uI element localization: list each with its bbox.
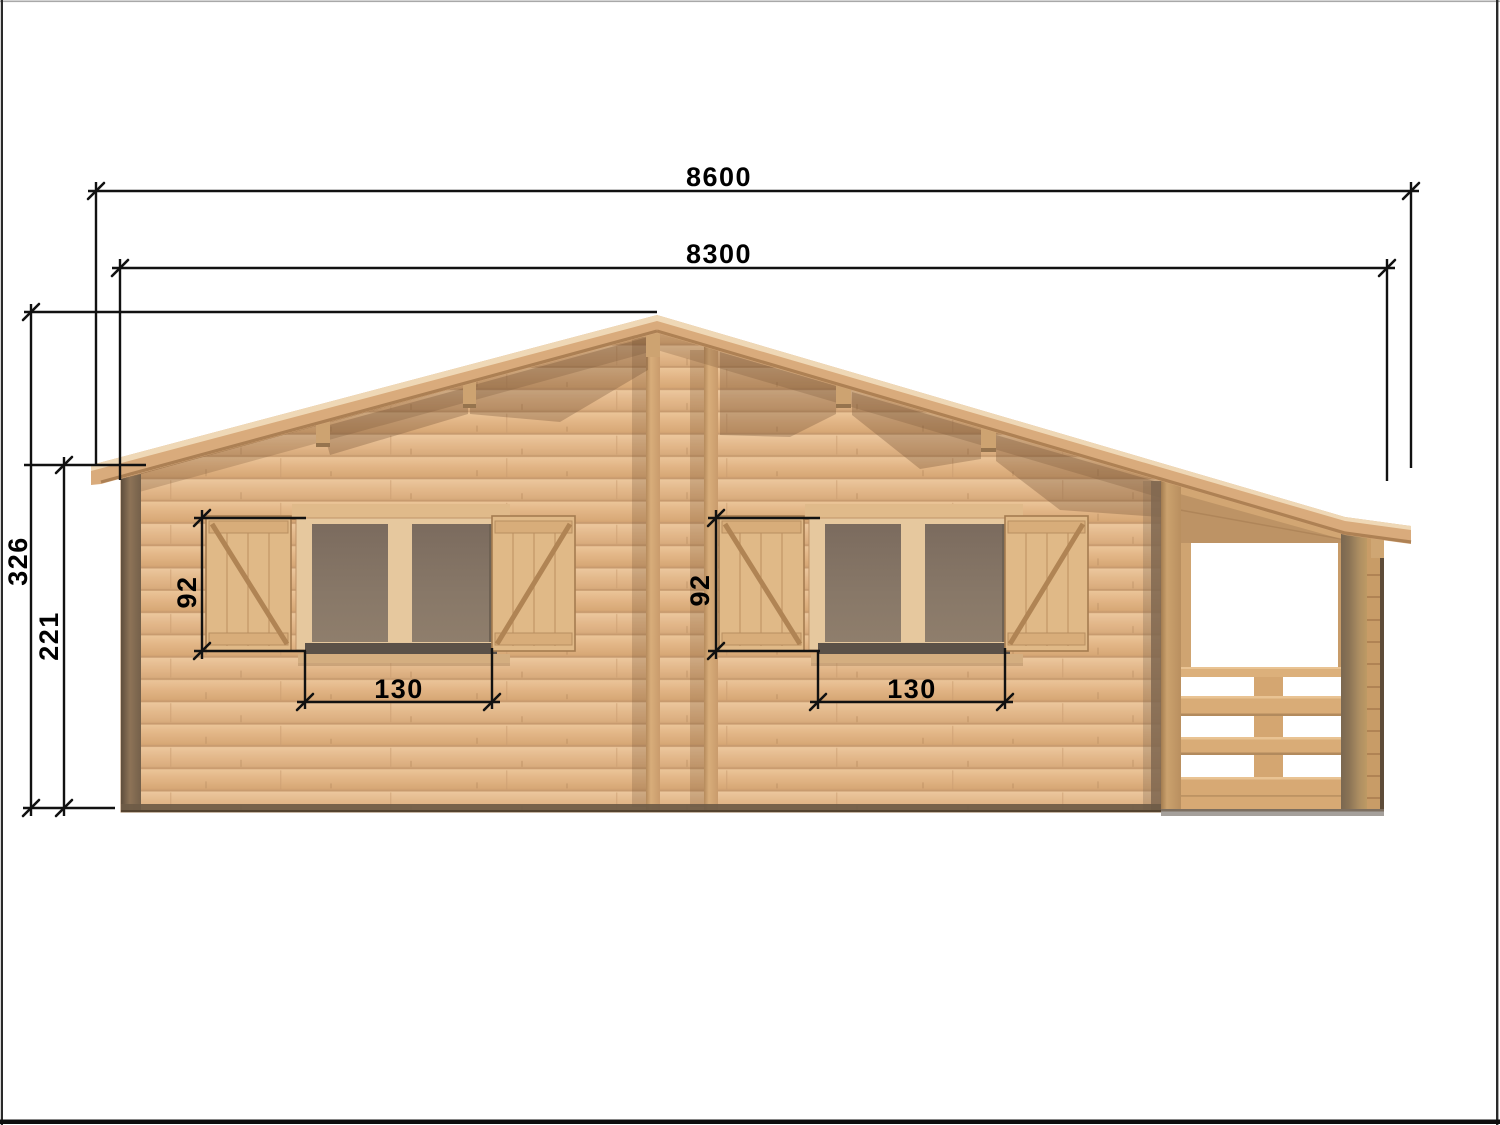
svg-text:221: 221 — [34, 611, 64, 661]
svg-text:8600: 8600 — [686, 162, 752, 192]
svg-text:92: 92 — [172, 575, 202, 608]
svg-text:130: 130 — [374, 674, 424, 704]
svg-text:92: 92 — [685, 573, 715, 606]
svg-text:8300: 8300 — [686, 239, 752, 269]
svg-text:326: 326 — [3, 536, 33, 586]
svg-text:130: 130 — [887, 674, 937, 704]
